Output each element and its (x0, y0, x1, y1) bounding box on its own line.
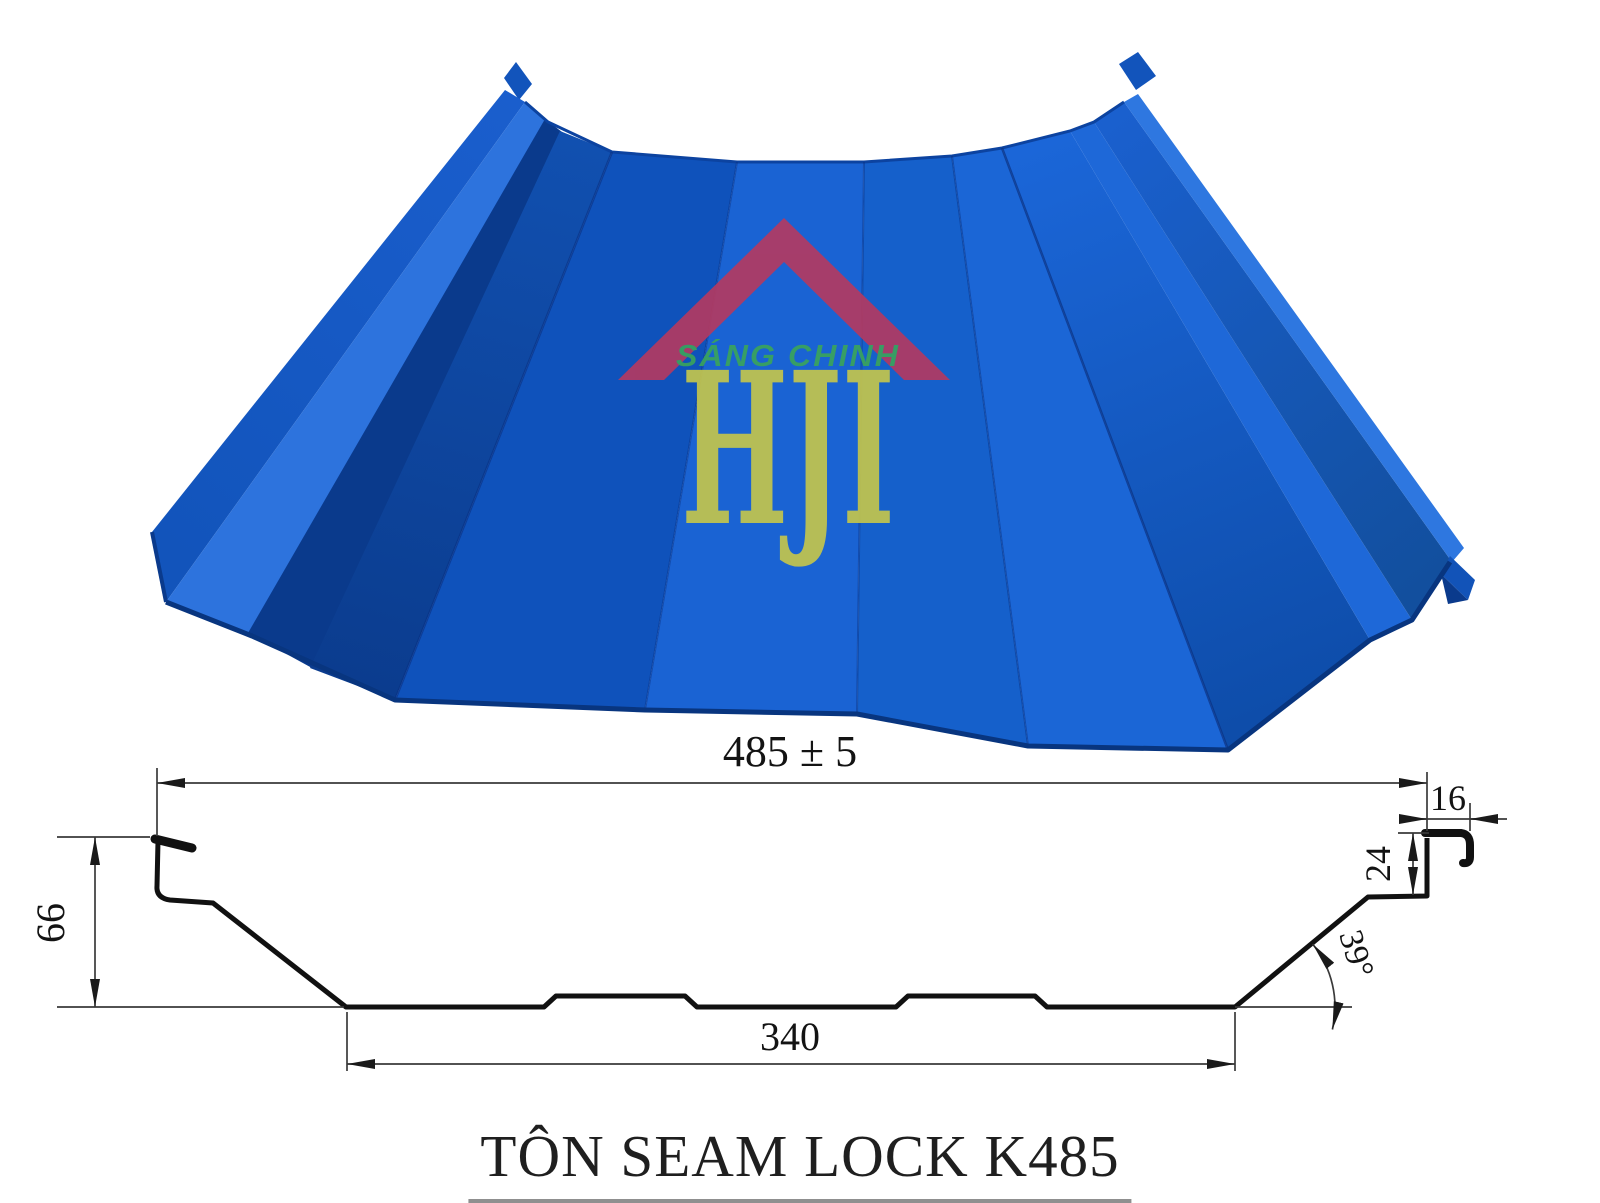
profile-outline (157, 838, 1427, 1007)
watermark-monogram: HJI (681, 326, 895, 573)
technical-drawing: 485 ± 5 16 24 66 340 (28, 727, 1507, 1071)
page-title: TÔN SEAM LOCK K485 (468, 1122, 1131, 1203)
dim-label-rib-height: 24 (1358, 846, 1398, 882)
dim-profile-height (57, 837, 344, 1007)
dim-rib-height (1398, 833, 1429, 895)
panel-right-fin-tab (1119, 52, 1156, 90)
dim-label-overall-width: 485 ± 5 (723, 727, 857, 776)
profile-right-hook (1425, 833, 1470, 863)
dim-label-hook-width: 16 (1430, 778, 1466, 818)
dim-label-base-width: 340 (760, 1014, 820, 1059)
dim-label-profile-height: 66 (28, 903, 73, 943)
dim-overall-width (157, 768, 1427, 836)
angle-arc (1313, 944, 1335, 1029)
panel-and-drawing-canvas: SÁNG CHINH HJI 485 ± 5 16 24 (0, 0, 1600, 1199)
product-sheet: SÁNG CHINH HJI 485 ± 5 16 24 (0, 0, 1600, 1199)
dim-label-web-angle: 39° (1331, 926, 1380, 982)
profile-left-hook (155, 839, 192, 848)
